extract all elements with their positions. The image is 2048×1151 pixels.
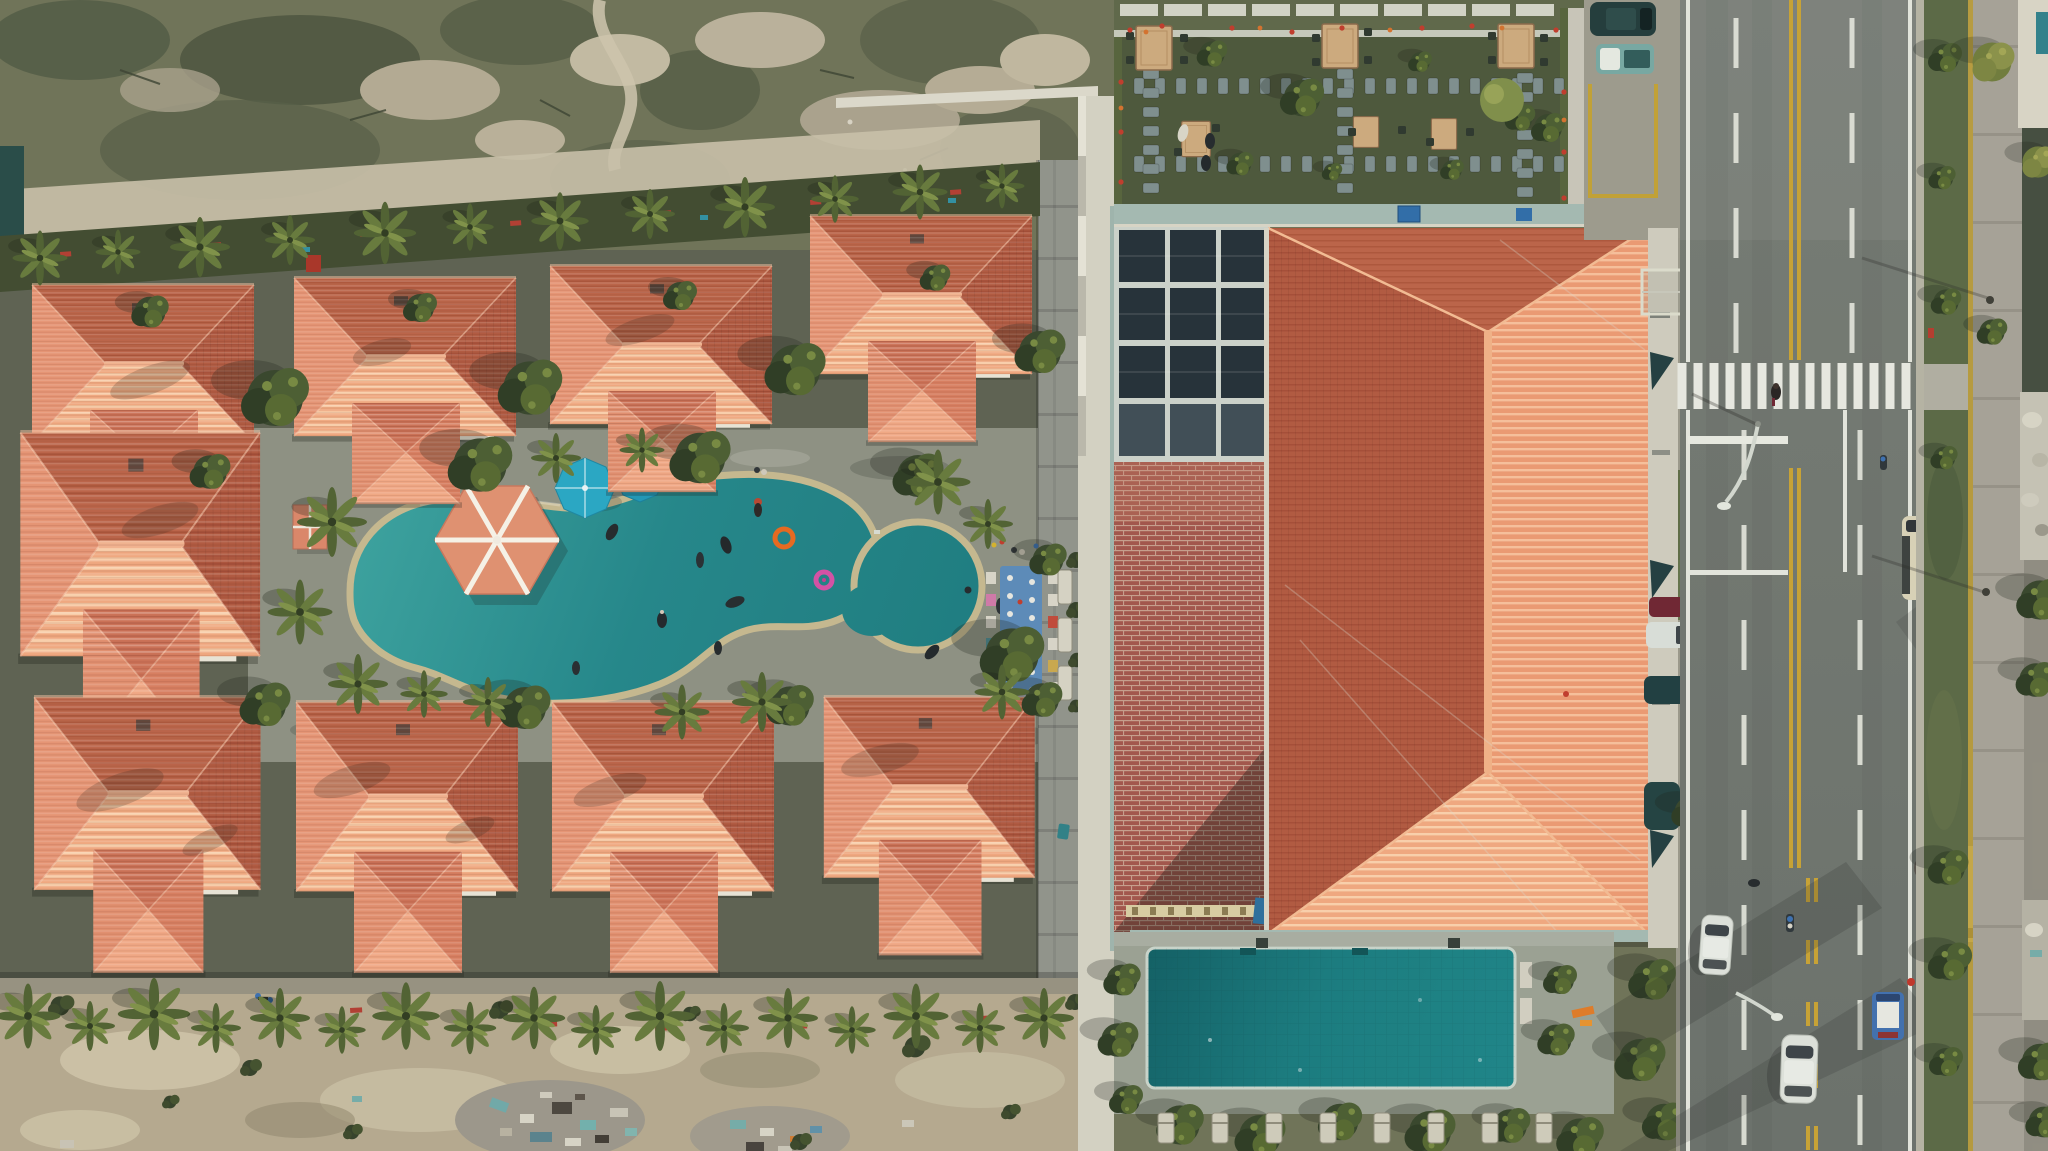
aerial-resort-photo <box>0 0 2048 1151</box>
atmospheric-haze <box>0 0 2048 1151</box>
scene-canvas <box>0 0 2048 1151</box>
